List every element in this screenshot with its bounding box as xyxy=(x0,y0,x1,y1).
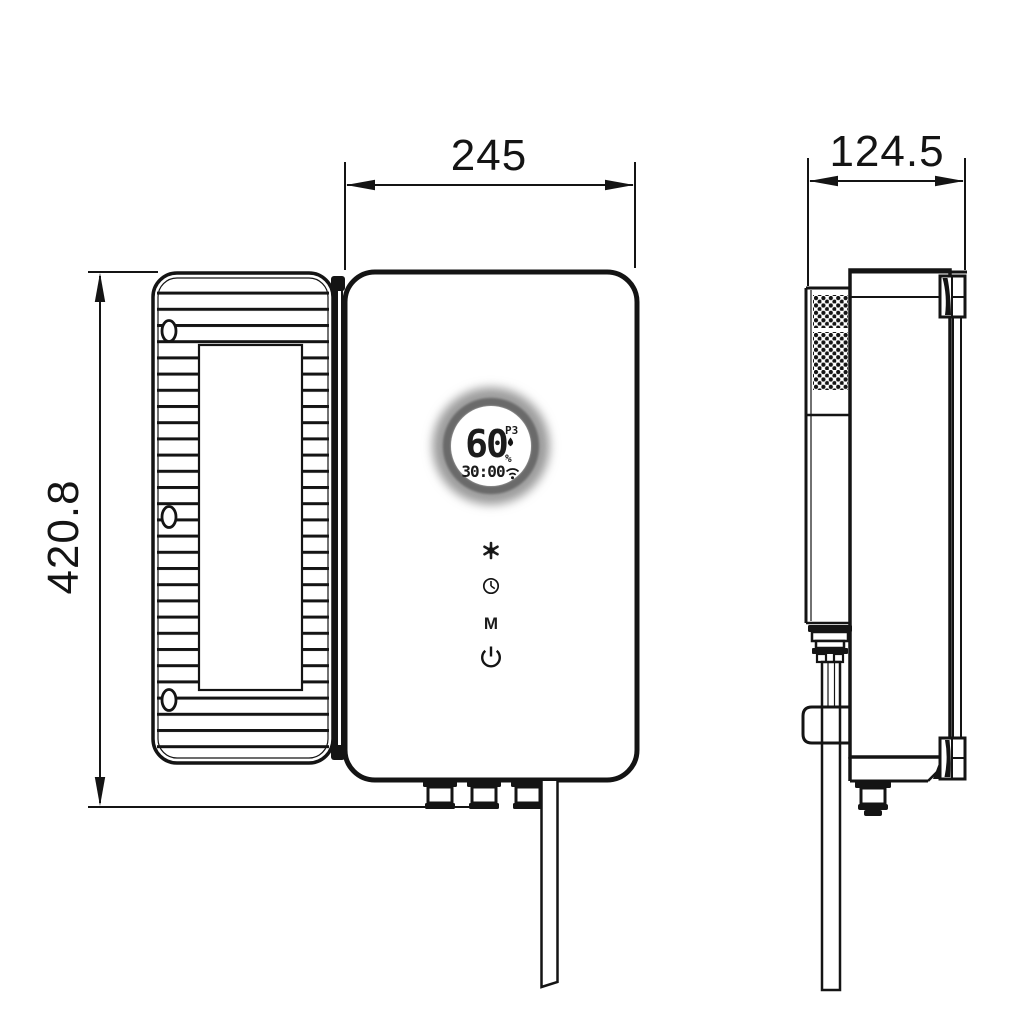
cable-gland-3 xyxy=(511,780,545,809)
arrow-left-icon xyxy=(346,180,375,190)
cable-gland-1 xyxy=(423,780,457,809)
hinge-pin-middle xyxy=(162,507,176,528)
arrow-left-icon xyxy=(809,176,838,186)
side-door-edge xyxy=(806,288,850,623)
percent-sign: % xyxy=(505,452,512,465)
mode-button: M xyxy=(484,614,498,633)
wall-bracket-bottom xyxy=(940,738,965,779)
front-view: 60 P3 % 30:00 M xyxy=(153,272,637,987)
main-body-front xyxy=(345,272,637,780)
hinge-pin-bottom xyxy=(162,690,176,711)
dimension-depth: 124.5 xyxy=(808,127,965,286)
timer-value: 30:00 xyxy=(461,462,505,481)
door-window xyxy=(199,345,302,690)
arrow-up-icon xyxy=(95,273,105,302)
temperature-value: 60 xyxy=(465,422,507,466)
side-view xyxy=(803,270,967,990)
arrow-right-icon xyxy=(605,180,634,190)
width-value: 245 xyxy=(451,131,527,180)
louvered-door xyxy=(153,273,333,763)
display: 60 P3 % 30:00 xyxy=(441,396,541,496)
vent-perforations-top xyxy=(813,295,848,328)
arrow-right-icon xyxy=(935,176,964,186)
cable-gland-2 xyxy=(467,780,501,809)
side-bottom-connector xyxy=(855,781,891,816)
dimension-width: 245 xyxy=(345,131,635,270)
side-cable-gland xyxy=(808,625,852,662)
height-value: 420.8 xyxy=(39,479,88,594)
hinge-pin-top xyxy=(162,321,176,342)
technical-drawing: 420.8 245 124.5 xyxy=(0,0,1024,1024)
main-body-side xyxy=(850,270,967,781)
vent-perforations-bottom xyxy=(813,332,848,390)
program-value: P3 xyxy=(505,424,518,437)
wall-bracket-top xyxy=(940,276,965,317)
depth-value: 124.5 xyxy=(829,127,944,176)
side-cable xyxy=(822,662,840,990)
bottom-connectors xyxy=(423,780,545,809)
power-cable-front xyxy=(542,781,558,987)
arrow-down-icon xyxy=(95,777,105,806)
